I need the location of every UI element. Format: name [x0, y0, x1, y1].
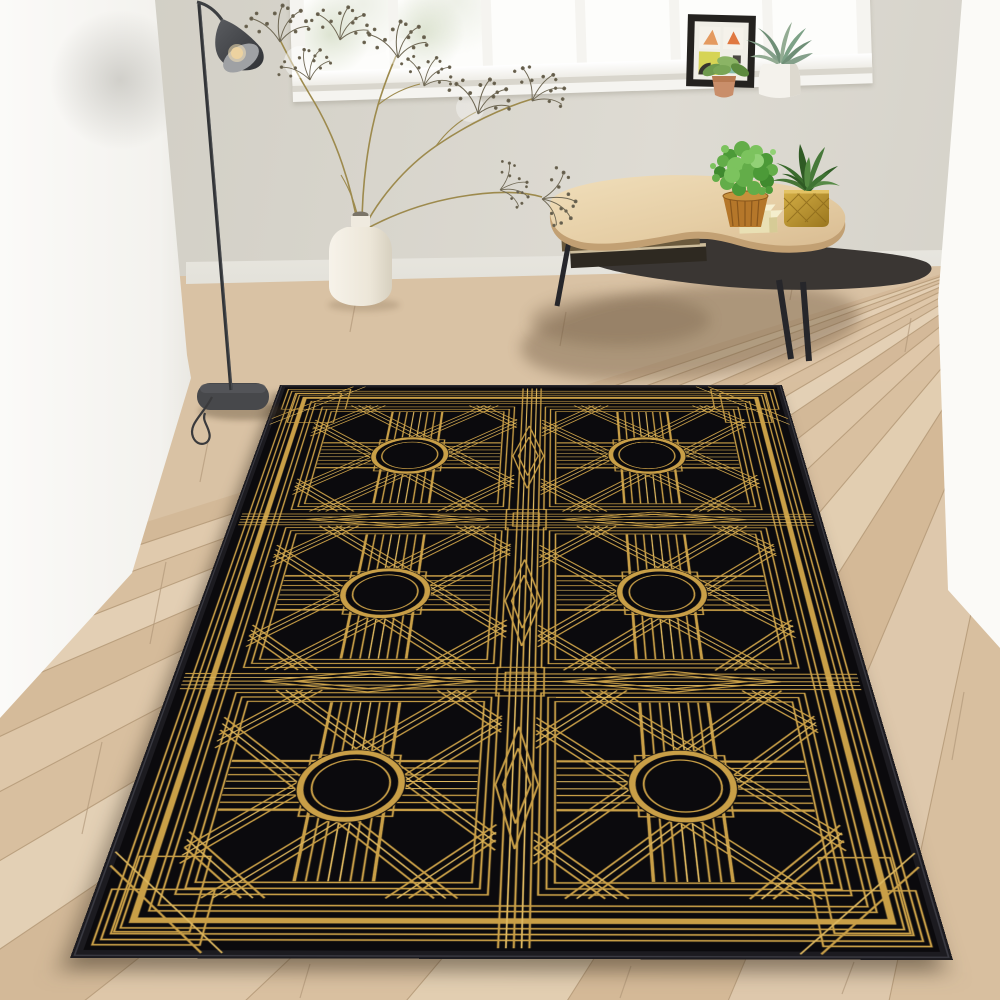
coffee-table: [516, 175, 931, 395]
branch-sprays: [245, 0, 577, 227]
vase-with-branches: [245, 0, 577, 312]
room-scene: [0, 0, 1000, 1000]
agave-plant: [746, 22, 813, 98]
lamp-bulb: [231, 47, 243, 59]
floor-lamp: [192, 2, 287, 444]
decor-layer: [0, 0, 1000, 1000]
windowsill-decor: [686, 14, 813, 98]
ceramic-vase: [329, 227, 392, 306]
succulent-leaves: [772, 144, 840, 191]
